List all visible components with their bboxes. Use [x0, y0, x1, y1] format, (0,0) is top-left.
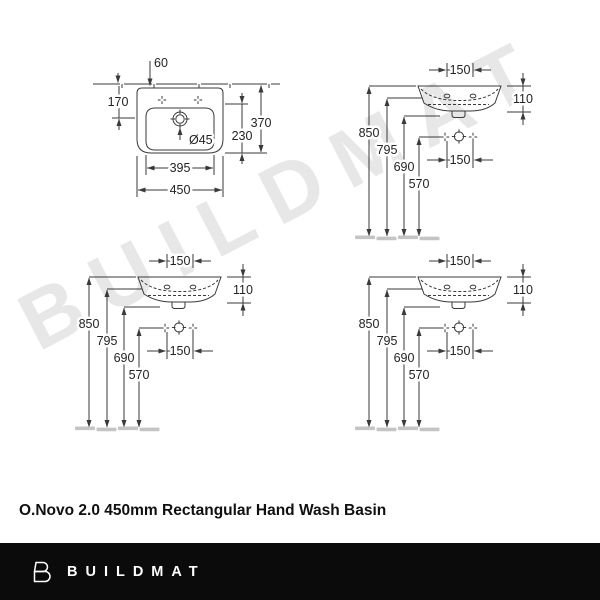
- basin-profile: [418, 277, 501, 302]
- dim-rim-to-floor: 850: [359, 317, 380, 331]
- fixing-mark: [161, 324, 169, 332]
- product-title: O.Novo 2.0 450mm Rectangular Hand Wash B…: [19, 502, 386, 520]
- spec-sheet-page: BUILDMAT 60 Ø45 170: [0, 0, 600, 600]
- dim-overall-width: 450: [170, 183, 191, 197]
- dim-fixing-to-floor: 570: [409, 368, 430, 382]
- footer-bar: BUILDMAT Villeroy & Boch 1748: [0, 543, 600, 600]
- fixing-mark: [469, 133, 477, 141]
- drawing-elevation-2: 150 110 150 850 795 690 57: [72, 247, 257, 442]
- dim-overall-depth: 370: [251, 116, 272, 130]
- basin-profile: [138, 277, 221, 302]
- drain-stub: [452, 302, 465, 309]
- dim-tap-spacing: 150: [170, 254, 191, 268]
- dim-fixing-to-floor: 570: [129, 368, 150, 382]
- dim-tap-spacing: 150: [450, 254, 471, 268]
- drain-stub: [172, 302, 185, 309]
- drain-position-mark: [174, 323, 183, 332]
- drawing-elevation-3: 150 110 150 850 795 690 57: [352, 247, 537, 442]
- fixing-mark: [189, 324, 197, 332]
- overflow-hole: [444, 94, 450, 98]
- overflow-hole: [164, 285, 170, 289]
- dim-underside-to-floor: 795: [377, 143, 398, 157]
- floor-line: [355, 236, 440, 241]
- buildmat-wordmark: BUILDMAT: [67, 564, 206, 580]
- dim-fixing-spacing: 150: [450, 153, 471, 167]
- dim-drain-diameter: Ø45: [189, 133, 213, 147]
- drawing-elevation-1: 150 110 150 850 795 690 57: [352, 56, 537, 251]
- dim-fixing-to-floor: 570: [409, 177, 430, 191]
- dim-basin-bottom-to-floor: 690: [394, 351, 415, 365]
- dim-tap-spacing: 150: [450, 63, 471, 77]
- dim-bowl-width: 395: [170, 161, 191, 175]
- drain-position-mark: [454, 323, 463, 332]
- basin-profile: [418, 86, 501, 111]
- tap-hole-mark: [194, 96, 202, 104]
- fixing-mark: [441, 324, 449, 332]
- dim-basin-bottom-to-floor: 690: [114, 351, 135, 365]
- overflow-hole: [190, 285, 196, 289]
- fixing-mark: [441, 133, 449, 141]
- drawing-top-view: 60 Ø45 170 230 370 395: [88, 48, 318, 208]
- dim-rim-height: 110: [513, 92, 533, 106]
- overflow-hole: [444, 285, 450, 289]
- dim-underside-to-floor: 795: [97, 334, 118, 348]
- dim-fixing-spacing: 150: [170, 344, 191, 358]
- buildmat-b-icon: [31, 561, 57, 583]
- drain-outer: [173, 112, 187, 126]
- fixing-mark: [469, 324, 477, 332]
- dim-rim-height: 110: [513, 283, 533, 297]
- drain-position-mark: [454, 132, 463, 141]
- tap-hole-mark: [158, 96, 166, 104]
- floor-line: [75, 427, 160, 432]
- wall-ticks: [122, 84, 269, 88]
- dim-rim-to-floor: 850: [359, 126, 380, 140]
- dim-drain-from-wall: 170: [108, 95, 129, 109]
- overflow-hole: [470, 94, 476, 98]
- dim-rim-to-floor: 850: [79, 317, 100, 331]
- dim-fixing-spacing: 150: [450, 344, 471, 358]
- overflow-hole: [470, 285, 476, 289]
- dim-basin-bottom-to-floor: 690: [394, 160, 415, 174]
- dim-wall-offset: 60: [154, 56, 168, 70]
- drain-inner: [176, 115, 184, 123]
- dim-bowl-depth: 230: [232, 129, 253, 143]
- buildmat-logo: BUILDMAT: [31, 543, 206, 600]
- drain-stub: [452, 111, 465, 118]
- dim-underside-to-floor: 795: [377, 334, 398, 348]
- dim-rim-height: 110: [233, 283, 253, 297]
- floor-line: [355, 427, 440, 432]
